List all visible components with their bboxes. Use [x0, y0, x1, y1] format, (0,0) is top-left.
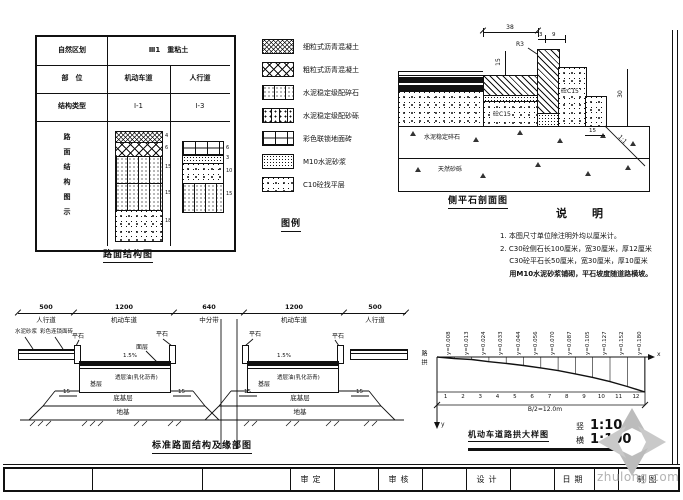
- legend: 细粒式沥青混凝土粗粒式沥青混凝土水泥稳定级配碎石水泥稳定级配砂砾彩色联锁地面砖M…: [262, 40, 394, 201]
- motor-lane-layer-stack: 46151518: [115, 131, 163, 242]
- dim-line: [585, 135, 605, 136]
- legend-caption: 图例: [281, 220, 301, 232]
- layer-thickness: 6: [165, 146, 168, 151]
- layer-speckle-columns: [183, 183, 223, 212]
- dim-number: 1200: [272, 304, 316, 311]
- material-label: 天然砂砾: [437, 167, 463, 173]
- material-label: 水泥稳定碎石: [423, 135, 461, 141]
- notes: 说 明 1. 本图尺寸单位除注明外均以厘米计。2. C30砼侧石长100厘米，宽…: [498, 206, 683, 294]
- crown-tick-number: 3: [475, 395, 485, 401]
- zone-label: 人行道: [350, 317, 400, 324]
- base-label: 基层: [258, 382, 270, 388]
- cross-section-drawing: 水泥砂浆 彩色连锁面砖 平石 平石 平石 平石 面层 1.5% 1.5% 基层 …: [15, 303, 435, 455]
- bottom-dim: B/2=12.0m: [505, 407, 585, 413]
- crown-point-label: y=0.152: [619, 331, 625, 355]
- legend-item-label: 粗粒式沥青混凝土: [303, 65, 359, 75]
- layer-thickness: 3: [226, 156, 229, 161]
- dim-number: 3: [539, 33, 543, 39]
- legend-item-label: 细粒式沥青混凝土: [303, 42, 359, 52]
- layer-thickness: 15: [165, 165, 171, 170]
- table-cell: Ⅲ1 重粘土: [107, 47, 230, 54]
- dim-number: 38: [495, 25, 525, 31]
- scale-h-label: 横: [576, 437, 584, 445]
- prime-coat-label: 透层油(乳化沥青): [115, 376, 158, 382]
- cross-section-linework: [15, 303, 435, 455]
- subgrade-label: 地基: [93, 409, 153, 416]
- edge-dim: 15: [63, 390, 70, 396]
- legend-item: 水泥稳定级配砂砾: [262, 109, 394, 122]
- crown-point-label: y=0.056: [533, 331, 539, 355]
- subbase-label: 底基层: [270, 395, 330, 402]
- legend-item: M10水泥砂浆: [262, 155, 394, 168]
- crown-tick-number: 12: [631, 395, 641, 401]
- crown-tick-number: 10: [596, 395, 606, 401]
- cross-section-caption: 标准路面结构及缘部图: [152, 442, 252, 454]
- zone-label: 机动车道: [269, 317, 319, 324]
- legend-item-label: M10水泥砂浆: [303, 157, 346, 167]
- title-block-cell: [335, 469, 379, 490]
- dim-number: 9: [552, 33, 556, 39]
- dim-number: R3: [516, 42, 524, 48]
- crown-point-label: y=0.180: [637, 331, 643, 355]
- line: [80, 368, 170, 369]
- crown-tick-number: 11: [614, 395, 624, 401]
- scale-v-label: 竖: [576, 423, 584, 431]
- line: [351, 353, 407, 354]
- watermark-logo: [596, 406, 668, 478]
- sidewalk-slab: [18, 349, 76, 360]
- line: [37, 93, 230, 94]
- title-block: 审定审核设计日期制图: [3, 467, 680, 492]
- material-label: 彩色连锁面砖: [40, 330, 73, 336]
- surface-course: [248, 362, 338, 366]
- legend-item-label: 彩色联锁地面砖: [303, 134, 352, 144]
- crown-tick-number: 1: [441, 395, 451, 401]
- dim-number: 500: [353, 304, 397, 311]
- line: [248, 368, 338, 369]
- layer-speckle-columns: [116, 156, 162, 183]
- legend-item: 彩色联锁地面砖: [262, 132, 394, 145]
- title-block-cell: [203, 469, 291, 490]
- surface-label: 面层: [136, 345, 148, 351]
- table-caption: 路面结构图: [103, 251, 153, 263]
- crown-point-label: y=0.087: [567, 331, 573, 355]
- base-label: 基层: [90, 382, 102, 388]
- legend-item: 粗粒式沥青混凝土: [262, 63, 394, 76]
- layer-thickness: 15: [165, 191, 171, 196]
- notes-title: 说 明: [498, 208, 668, 219]
- crown-caption: 机动车道路拱大样图: [468, 431, 549, 442]
- line: [37, 65, 230, 66]
- layer-thickness: 15: [226, 192, 232, 197]
- crown-tick-number: 5: [510, 395, 520, 401]
- line: [19, 353, 75, 354]
- title-block-field: 审核: [379, 469, 423, 490]
- line: [107, 37, 108, 246]
- crown-tick-number: 6: [527, 395, 537, 401]
- crown-point-label: y=0.105: [585, 331, 591, 355]
- fine-crosshatch-swatch: [262, 39, 294, 54]
- note-line: 2. C30砼侧石长100厘米，宽30厘米，厚12厘米: [500, 246, 652, 253]
- legend-item: 水泥稳定级配碎石: [262, 86, 394, 99]
- dim-line: [505, 51, 506, 75]
- legend-item: 细粒式沥青混凝土: [262, 40, 394, 53]
- sidewalk-slab: [350, 349, 408, 360]
- layer-thickness: 6: [226, 146, 229, 151]
- title-block-field: 审定: [291, 469, 335, 490]
- table-row-label: 自然区划: [37, 47, 107, 54]
- material-label: 砼C15: [492, 112, 512, 118]
- curb-detail-drawing: 38 3 9 R3 15 30 15 1:1 砼C15 砼C15 水泥稳定碎石 …: [395, 25, 683, 207]
- dim-line: [483, 32, 538, 33]
- axis-y-label: y: [441, 422, 445, 428]
- dim-number: 15: [496, 58, 502, 66]
- zone-label: 人行道: [21, 317, 71, 324]
- crown-point-label: y=0.044: [516, 331, 522, 355]
- crown-point-label: y=0.033: [498, 331, 504, 355]
- table-row-label: 路面结构图示: [63, 133, 70, 223]
- slope-label: 1.5%: [277, 354, 291, 360]
- dim-number: 500: [24, 304, 68, 311]
- dim-number: 1200: [102, 304, 146, 311]
- edge-dim: 15: [244, 390, 251, 396]
- coarse-stipple-swatch: [262, 177, 294, 192]
- curb-detail-linework: [395, 25, 683, 207]
- crown-side-label: 路拱: [420, 350, 426, 368]
- speckle-blocks-swatch: [262, 108, 294, 123]
- flat-stone-label: 平石: [332, 334, 344, 340]
- crown-tick-number: 9: [579, 395, 589, 401]
- table-cell: 机动车道: [107, 75, 170, 82]
- crown-tick-number: 4: [493, 395, 503, 401]
- crown-point-label: y=0.070: [550, 331, 556, 355]
- dim-number: 30: [618, 90, 624, 98]
- line: [545, 35, 546, 43]
- note-line: 用M10水泥砂浆铺砌，平石坡度随道路横坡。: [500, 271, 652, 278]
- legend-item-label: C10砼找平层: [303, 180, 345, 190]
- crown-tick-number: 7: [544, 395, 554, 401]
- table-cell: 人行道: [170, 75, 230, 82]
- sidewalk-layer-stack: 631015: [182, 141, 224, 213]
- dim-line: [627, 69, 628, 126]
- dim-number: 640: [187, 304, 231, 311]
- dim-number: 15: [589, 129, 596, 135]
- flat-stone-label: 平石: [156, 332, 168, 338]
- crown-point-label: y=0.024: [481, 331, 487, 355]
- legend-item-label: 水泥稳定级配砂砾: [303, 111, 359, 121]
- sheet-border: [3, 464, 680, 465]
- note-line: C30砼平石长50厘米，宽30厘米，厚10厘米: [500, 258, 648, 265]
- crown-point-label: y=0.008: [446, 331, 452, 355]
- brick-swatch: [262, 131, 294, 146]
- legend-item-label: 水泥稳定级配碎石: [303, 88, 359, 98]
- crown-tick-number: 8: [562, 395, 572, 401]
- layer-thickness: 4: [165, 134, 168, 139]
- sheet-border: [672, 30, 673, 465]
- subgrade-label: 地基: [270, 409, 330, 416]
- table-cell: Ⅰ-3: [170, 103, 230, 110]
- table-cell: Ⅰ-1: [107, 103, 170, 110]
- title-block-field: 日期: [555, 469, 595, 490]
- layer-speckle-columns: [116, 183, 162, 210]
- axis-x-label: x: [657, 352, 661, 358]
- slope-label: 1.5%: [123, 354, 137, 360]
- zone-label: 机动车道: [99, 317, 149, 324]
- table-row-label: 结构类型: [37, 103, 107, 110]
- crown-point-label: y=0.013: [464, 331, 470, 355]
- flat-stone-label: 平石: [72, 334, 84, 340]
- crown-point-label: y=0.127: [602, 331, 608, 355]
- table-row-label: 部 位: [37, 75, 107, 82]
- sheet-border: [677, 30, 678, 465]
- subbase-label: 底基层: [93, 395, 153, 402]
- note-line: 1. 本图尺寸单位除注明外均以厘米计。: [500, 233, 621, 240]
- title-block-cell: [93, 469, 203, 490]
- layer-thickness: 18: [165, 219, 171, 224]
- line: [565, 35, 566, 43]
- legend-item: C10砼找平层: [262, 178, 394, 191]
- zone-label: 中分带: [184, 317, 234, 324]
- title-block-field: 设计: [467, 469, 511, 490]
- layer-fine-stipple: [183, 155, 223, 163]
- layer-thickness: 10: [226, 169, 232, 174]
- layer-coarse-stipple: [116, 210, 162, 241]
- layer-coarse-stipple: [183, 163, 223, 183]
- drawing-sheet: 自然区划 Ⅲ1 重粘土 部 位 机动车道 人行道 结构类型 Ⅰ-1 Ⅰ-3 路面…: [0, 0, 683, 500]
- surface-course: [80, 362, 170, 366]
- layer-coarse-crosshatch: [116, 142, 162, 156]
- material-label: 砼C15: [560, 89, 580, 95]
- line: [37, 121, 230, 122]
- fine-stipple-swatch: [262, 154, 294, 169]
- structure-table: 自然区划 Ⅲ1 重粘土 部 位 机动车道 人行道 结构类型 Ⅰ-1 Ⅰ-3 路面…: [35, 35, 236, 252]
- speckle-columns-swatch: [262, 85, 294, 100]
- edge-dim: 15: [356, 390, 363, 396]
- material-label: 水泥砂浆: [15, 330, 37, 336]
- title-block-cell: [511, 469, 555, 490]
- flat-stone-label: 平石: [249, 332, 261, 338]
- title-block-cell: [423, 469, 467, 490]
- layer-fine-crosshatch: [116, 132, 162, 142]
- title-block-cell: [5, 469, 93, 490]
- dim-line: [538, 39, 565, 40]
- layer-brick: [183, 142, 223, 155]
- edge-dim: 15: [178, 390, 185, 396]
- crown-tick-number: 2: [458, 395, 468, 401]
- watermark-text: zhulong.com: [597, 471, 679, 483]
- prime-coat-label: 透层油(乳化沥青): [277, 376, 320, 382]
- coarse-crosshatch-swatch: [262, 62, 294, 77]
